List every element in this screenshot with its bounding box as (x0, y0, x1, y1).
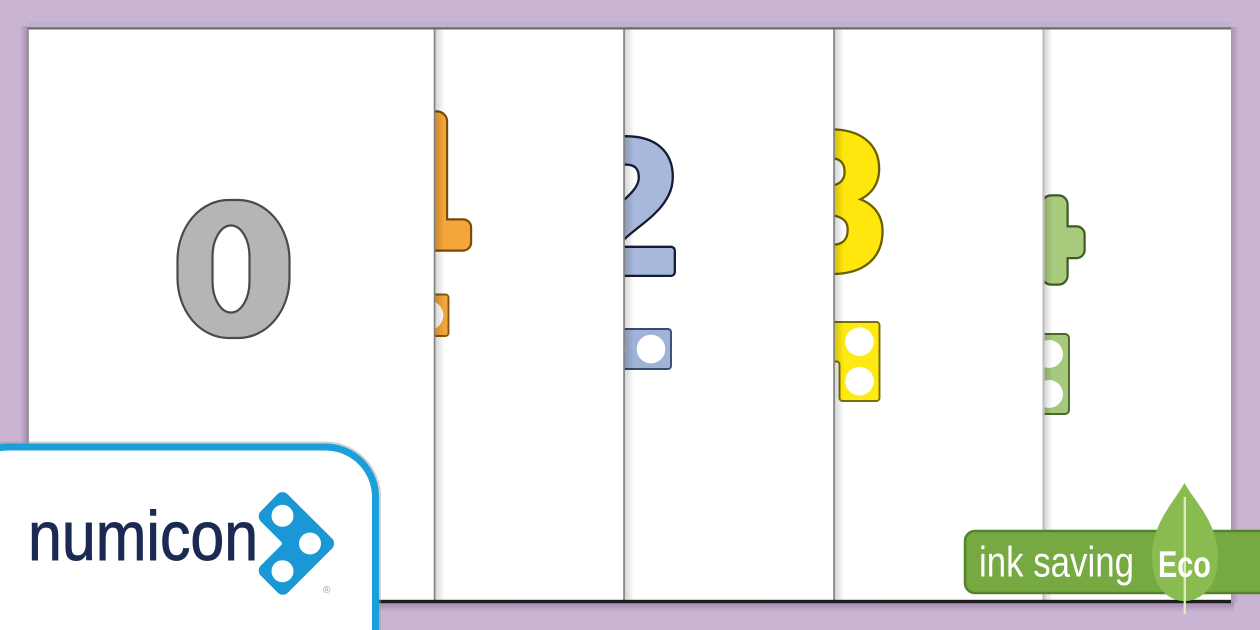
svg-text:®: ® (323, 585, 331, 596)
svg-text:Eco: Eco (1158, 545, 1211, 586)
svg-text:numicon: numicon (28, 497, 258, 575)
svg-text:ink saving: ink saving (979, 539, 1134, 586)
